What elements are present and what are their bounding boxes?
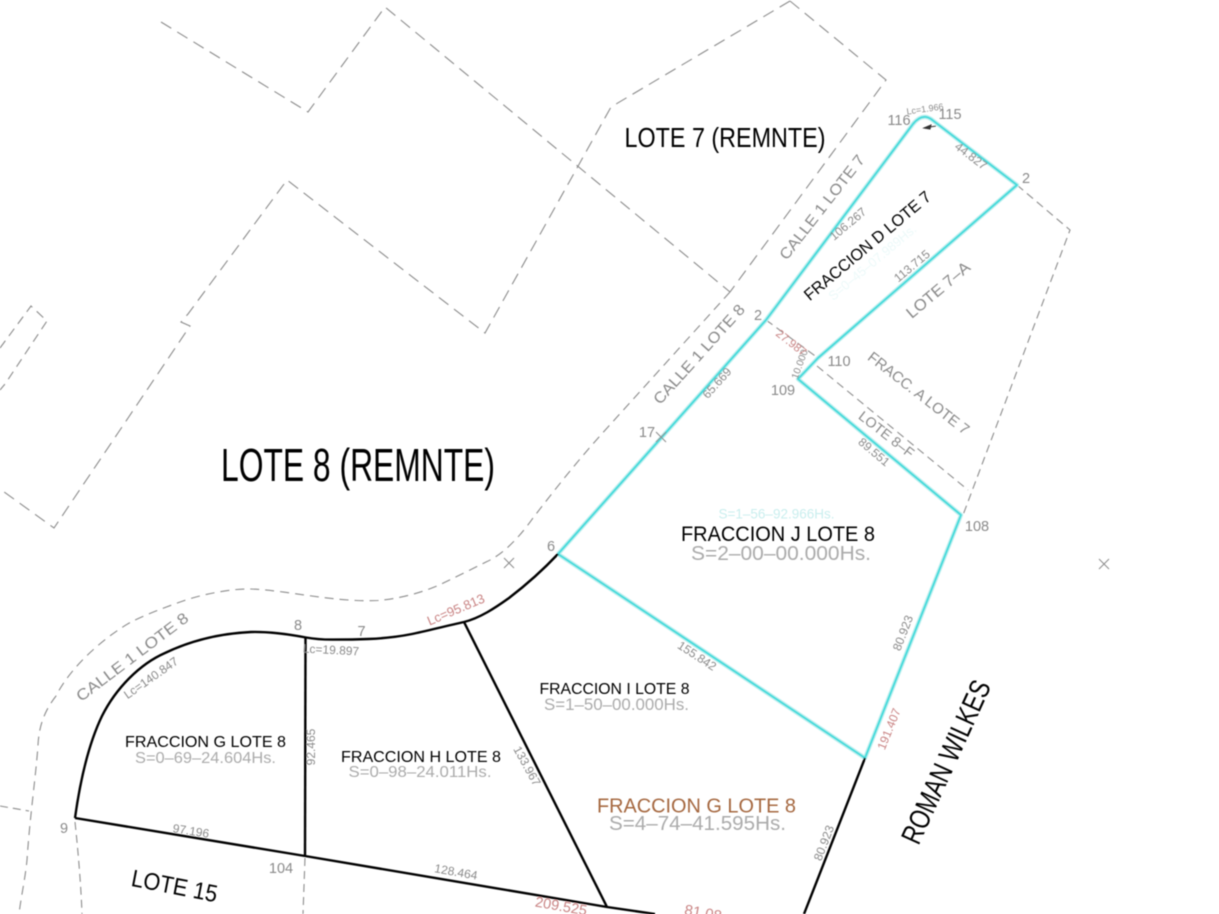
svg-text:2: 2	[754, 308, 762, 324]
svg-text:S=1–56–92.966Hs.: S=1–56–92.966Hs.	[719, 506, 835, 522]
svg-text:S=0–98–24.011Hs.: S=0–98–24.011Hs.	[349, 764, 492, 781]
svg-text:6: 6	[547, 539, 555, 555]
svg-text:7: 7	[357, 624, 365, 640]
svg-text:92.465: 92.465	[304, 728, 318, 765]
svg-text:S=2–00–00.000Hs.: S=2–00–00.000Hs.	[691, 543, 871, 565]
svg-text:104: 104	[269, 861, 293, 877]
svg-text:8: 8	[294, 618, 302, 634]
svg-text:17: 17	[639, 425, 655, 441]
svg-text:109: 109	[771, 383, 795, 399]
svg-text:9: 9	[60, 821, 68, 837]
svg-text:LOTE 8 (REMNTE): LOTE 8 (REMNTE)	[221, 439, 495, 491]
svg-text:S=0–69–24.604Hs.: S=0–69–24.604Hs.	[135, 750, 276, 767]
svg-text:108: 108	[965, 519, 989, 535]
svg-text:LOTE 7 (REMNTE): LOTE 7 (REMNTE)	[625, 122, 826, 153]
svg-text:S=4–74–41.595Hs.: S=4–74–41.595Hs.	[609, 813, 786, 835]
svg-text:S=1–50–00.000Hs.: S=1–50–00.000Hs.	[544, 696, 689, 714]
svg-text:Lc=19.897: Lc=19.897	[302, 642, 359, 659]
svg-text:FRACCION G LOTE 8: FRACCION G LOTE 8	[125, 734, 286, 751]
svg-text:110: 110	[827, 354, 850, 370]
svg-text:2: 2	[1022, 171, 1030, 187]
